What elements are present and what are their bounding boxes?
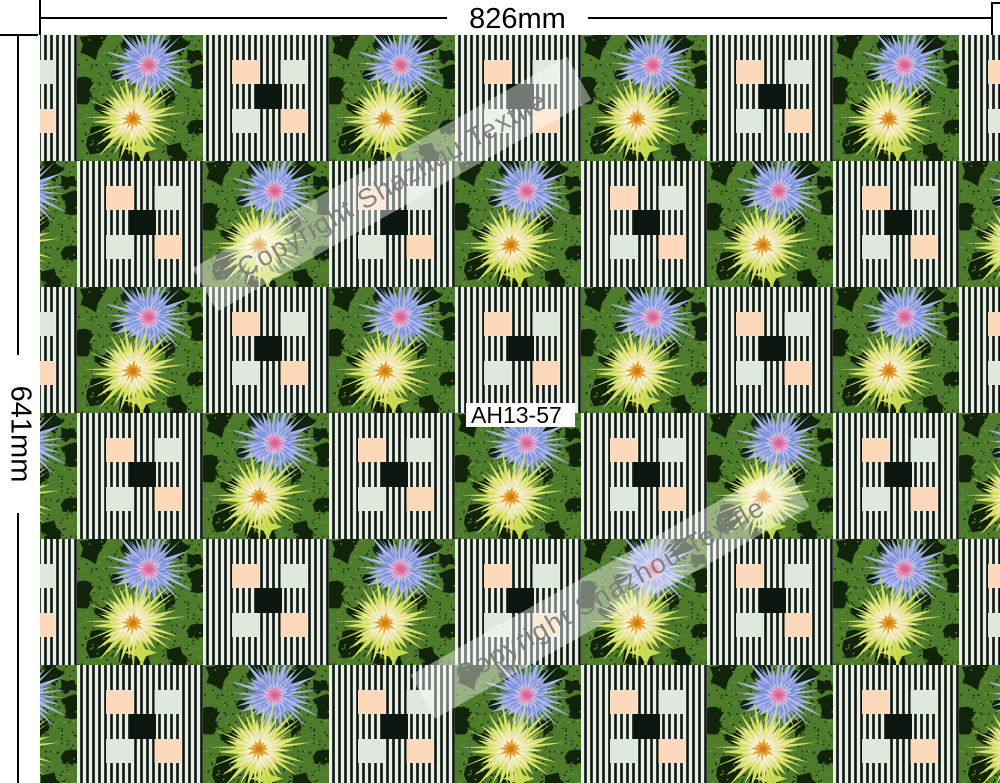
top-dim-line-left xyxy=(40,17,447,19)
height-dimension-label: 641mm xyxy=(4,386,37,483)
top-dim-stub-right xyxy=(991,2,1000,4)
top-dim-tick-right xyxy=(991,3,993,35)
design-code-label: AH13-57 xyxy=(466,403,575,427)
width-dimension-label: 826mm xyxy=(447,3,588,36)
left-dim-line-lower xyxy=(17,513,19,783)
textile-preview-page: 826mm 641mm Copyright Shazhou TextileCop… xyxy=(0,0,1000,783)
top-dim-line-right xyxy=(588,17,992,19)
left-dim-tick-top xyxy=(0,34,38,36)
left-dim-line-upper xyxy=(17,36,19,355)
